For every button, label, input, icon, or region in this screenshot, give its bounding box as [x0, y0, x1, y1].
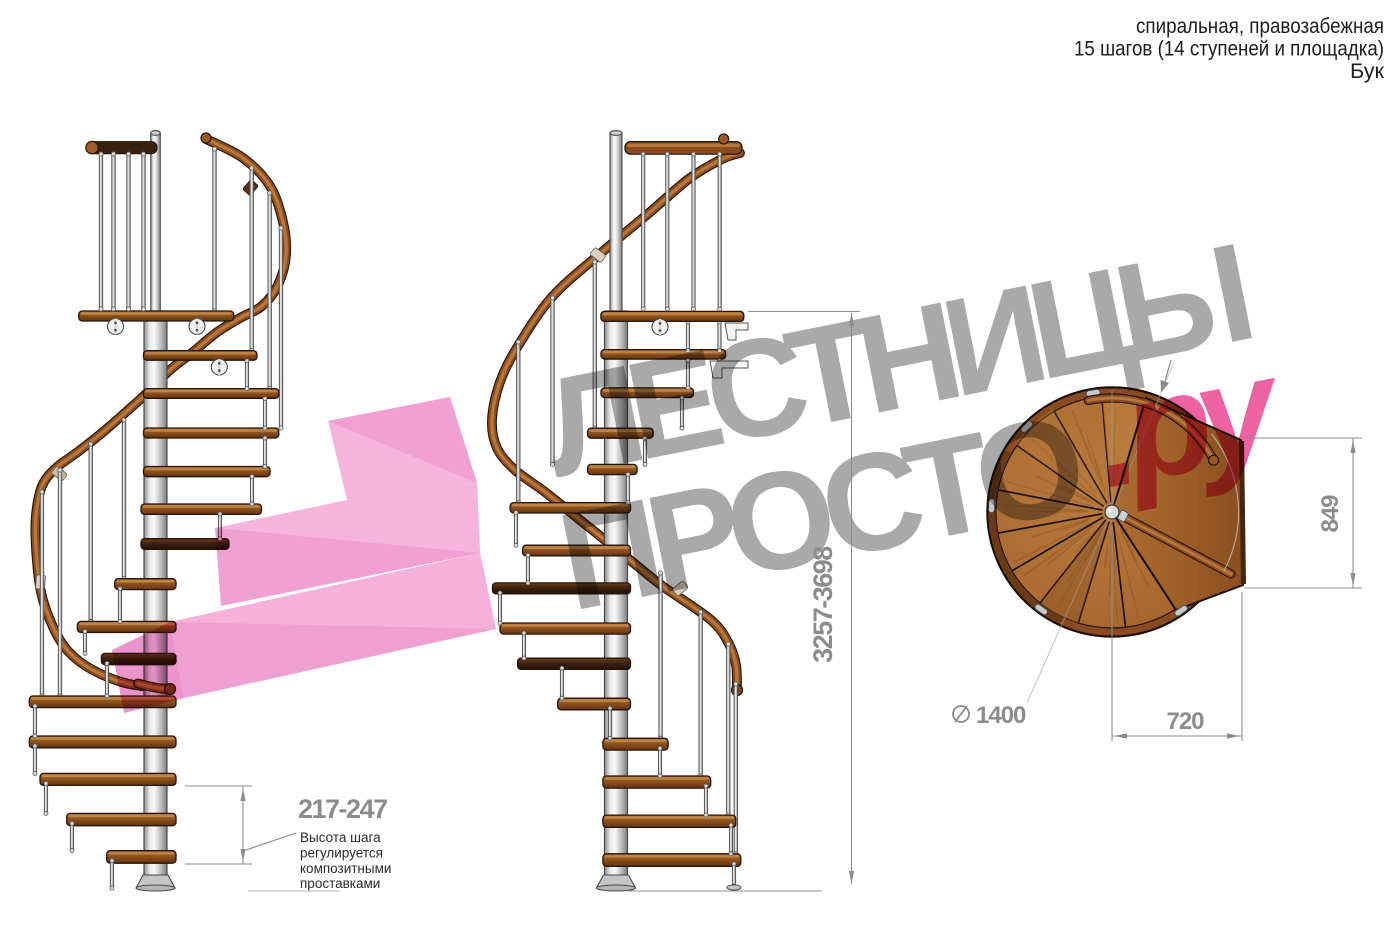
svg-text:спиральная, правозабежная: спиральная, правозабежная	[1136, 14, 1384, 38]
svg-text:3257-3698: 3257-3698	[808, 546, 838, 663]
svg-text:849: 849	[1317, 495, 1344, 533]
svg-text:Высота шага: Высота шага	[300, 830, 381, 845]
svg-text:проставками: проставками	[300, 876, 380, 891]
svg-text:Бук: Бук	[1350, 59, 1385, 83]
svg-text:регулируется: регулируется	[300, 845, 383, 860]
svg-text:217-247: 217-247	[298, 794, 387, 824]
svg-text:15 шагов (14 ступеней и площад: 15 шагов (14 ступеней и площадка)	[1074, 37, 1384, 61]
svg-text:720: 720	[1166, 708, 1204, 735]
svg-text:композитными: композитными	[300, 861, 391, 876]
svg-text:1400: 1400	[976, 702, 1026, 729]
